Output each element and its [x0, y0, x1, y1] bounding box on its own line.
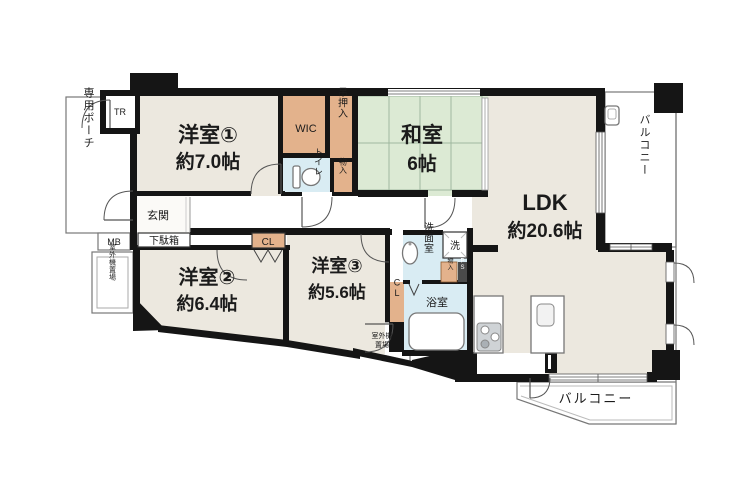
- pipe-space-label: PS: [460, 259, 466, 272]
- wall-west3-right: [385, 229, 390, 322]
- trunk-room-label: TR: [114, 107, 126, 117]
- toilet-tank-icon: [293, 166, 300, 188]
- wall-west3-top-a: [287, 229, 360, 235]
- wall-washitsu-bottom-b: [452, 190, 488, 197]
- wall-washitsu-left: [352, 96, 358, 196]
- casement-arc-1: [674, 263, 694, 283]
- bath-label: 浴室: [426, 295, 448, 309]
- wall-right-seg3: [666, 344, 674, 352]
- outdoor-unit-bottom-label-2: 置場: [375, 340, 389, 349]
- stove-burner-1: [481, 326, 489, 334]
- storage2-label: 物入: [446, 257, 453, 271]
- wall-pillar-bottomright: [652, 350, 680, 380]
- floor-plan: 洋室① 約7.0帖 WIC 吊押入 和室 6帖 LDK 約20.6帖 トイレ 物…: [0, 0, 753, 500]
- shoe-cabinet-label: 下駄箱: [149, 234, 179, 247]
- private-porch-label: 専用ポーチ: [82, 86, 95, 149]
- balcony-bottom-label: バルコニー: [559, 391, 634, 406]
- room-west1-size: 約7.0帖: [176, 150, 240, 173]
- outdoor-unit-left-label: 室外機置場: [109, 242, 117, 281]
- window-casement-2: [666, 324, 674, 344]
- wall-toilet-bottom-a: [285, 192, 302, 196]
- wall-kitchen-stub: [470, 245, 498, 252]
- wall-bath-top-a: [403, 280, 410, 284]
- wall-wic-divider: [325, 96, 330, 158]
- room-washitsu-size: 6帖: [407, 152, 437, 175]
- room-ldk-name: LDK: [522, 190, 567, 215]
- wall-kitchen-end-slot: [548, 355, 551, 369]
- wall-bottom-passage: [455, 374, 549, 382]
- washroom-label: 洗面室: [422, 222, 434, 254]
- wall-top: [133, 88, 605, 96]
- bathtub-icon: [409, 313, 464, 350]
- floor-plan-svg: 洋室① 約7.0帖 WIC 吊押入 和室 6帖 LDK 約20.6帖 トイレ 物…: [0, 0, 753, 500]
- room-west3-size: 約5.6帖: [308, 282, 366, 302]
- room-west2-size: 約6.4帖: [176, 293, 237, 314]
- closet2-label: CL: [392, 278, 402, 299]
- kitchen-passage-floor: [475, 353, 545, 374]
- storage1-label: 物入: [339, 157, 348, 175]
- wall-bath-bottom: [402, 350, 468, 356]
- window-washitsu-top: [388, 89, 480, 96]
- entrance-label: 玄関: [147, 208, 169, 222]
- hanging-closet-label: 吊押入: [336, 87, 348, 119]
- wall-ldk-right-lower: [596, 213, 605, 250]
- window-casement-1: [666, 262, 674, 282]
- room-washitsu-name: 和室: [401, 123, 443, 147]
- wall-washitsu-bottom-a: [358, 190, 428, 197]
- room-west1-name: 洋室①: [178, 123, 238, 147]
- wall-west1-bottom-a: [133, 191, 251, 196]
- stove-burner-3: [481, 340, 489, 348]
- washer-label: 洗: [450, 240, 460, 252]
- wall-west2-west3-divider: [283, 250, 289, 341]
- wall-toilet-bottom-b: [332, 192, 358, 196]
- kitchen-sink-icon: [537, 304, 554, 326]
- wall-left-west2: [133, 250, 140, 305]
- window-ldk-right: [596, 132, 605, 213]
- stove-burner-2: [491, 333, 499, 341]
- room-west3-name: 洋室③: [311, 255, 362, 276]
- casement-arc-2: [674, 325, 694, 345]
- room-ldk-size: 約20.6帖: [508, 219, 583, 242]
- wall-ldk-right-upper: [596, 96, 605, 132]
- outdoor-unit-bottom-label-1: 室外機: [372, 331, 393, 340]
- wic-label: WIC: [295, 123, 316, 135]
- wall-toilet-right: [330, 158, 334, 192]
- wall-pillar-topright: [654, 83, 683, 113]
- balcony-right-label: バルコニー: [638, 114, 651, 177]
- room-west2-name: 洋室②: [179, 265, 236, 289]
- toilet-label: トイレ: [313, 148, 323, 177]
- vanity-faucet-icon: [409, 243, 412, 246]
- wall-right-seg2: [666, 282, 674, 324]
- closet1-label: CL: [262, 237, 275, 248]
